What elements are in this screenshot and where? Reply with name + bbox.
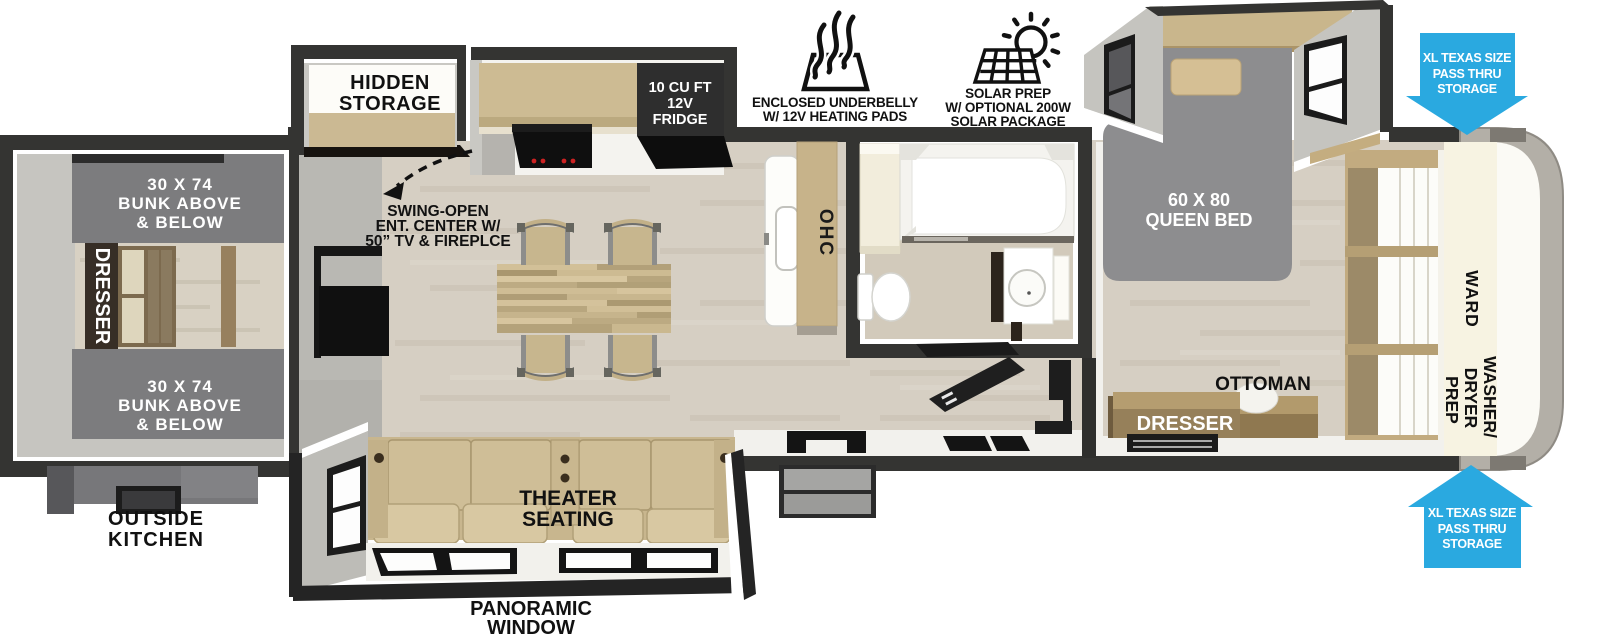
svg-text:BUNK ABOVE: BUNK ABOVE — [118, 194, 242, 213]
svg-text:30 X 74: 30 X 74 — [147, 175, 213, 194]
svg-text:STORAGE: STORAGE — [1437, 82, 1497, 96]
svg-text:THEATER: THEATER — [519, 487, 617, 510]
svg-text:60 X 80: 60 X 80 — [1168, 190, 1230, 210]
svg-text:QUEEN BED: QUEEN BED — [1145, 210, 1252, 230]
svg-text:STORAGE: STORAGE — [1442, 537, 1502, 551]
svg-text:OUTSIDE: OUTSIDE — [108, 508, 204, 530]
svg-text:DRESSER: DRESSER — [1137, 413, 1234, 435]
svg-text:SEATING: SEATING — [522, 508, 614, 531]
svg-text:30 X 74: 30 X 74 — [147, 377, 213, 396]
svg-text:PASS THRU: PASS THRU — [1438, 522, 1507, 536]
svg-text:OHC: OHC — [815, 209, 836, 257]
svg-text:KITCHEN: KITCHEN — [108, 529, 204, 551]
svg-text:12V: 12V — [667, 96, 693, 112]
svg-text:DRYER: DRYER — [1461, 368, 1481, 429]
svg-text:ENCLOSED UNDERBELLY: ENCLOSED UNDERBELLY — [752, 95, 918, 110]
svg-text:10 CU FT: 10 CU FT — [649, 80, 712, 96]
svg-text:& BELOW: & BELOW — [136, 415, 223, 434]
svg-text:XL TEXAS SIZE: XL TEXAS SIZE — [1423, 51, 1511, 65]
svg-text:50” TV & FIREPLCE: 50” TV & FIREPLCE — [365, 233, 511, 250]
svg-text:W/ 12V HEATING PADS: W/ 12V HEATING PADS — [763, 109, 907, 124]
svg-text:& BELOW: & BELOW — [136, 213, 223, 232]
svg-text:WASHER/: WASHER/ — [1480, 356, 1500, 438]
svg-text:HIDDEN: HIDDEN — [350, 72, 430, 94]
svg-text:DRESSER: DRESSER — [91, 248, 113, 345]
svg-text:XL TEXAS SIZE: XL TEXAS SIZE — [1428, 506, 1516, 520]
svg-text:SOLAR PREP: SOLAR PREP — [965, 86, 1051, 101]
svg-text:PREP: PREP — [1442, 376, 1462, 424]
svg-text:BUNK ABOVE: BUNK ABOVE — [118, 396, 242, 415]
svg-text:STORAGE: STORAGE — [339, 93, 441, 115]
svg-text:SOLAR PACKAGE: SOLAR PACKAGE — [951, 114, 1066, 129]
svg-text:W/ OPTIONAL 200W: W/ OPTIONAL 200W — [945, 100, 1071, 115]
svg-text:OTTOMAN: OTTOMAN — [1215, 374, 1311, 395]
svg-text:FRIDGE: FRIDGE — [653, 112, 708, 128]
svg-text:WINDOW: WINDOW — [487, 617, 575, 635]
svg-text:WARD: WARD — [1462, 270, 1482, 327]
svg-text:PASS THRU: PASS THRU — [1433, 67, 1502, 81]
